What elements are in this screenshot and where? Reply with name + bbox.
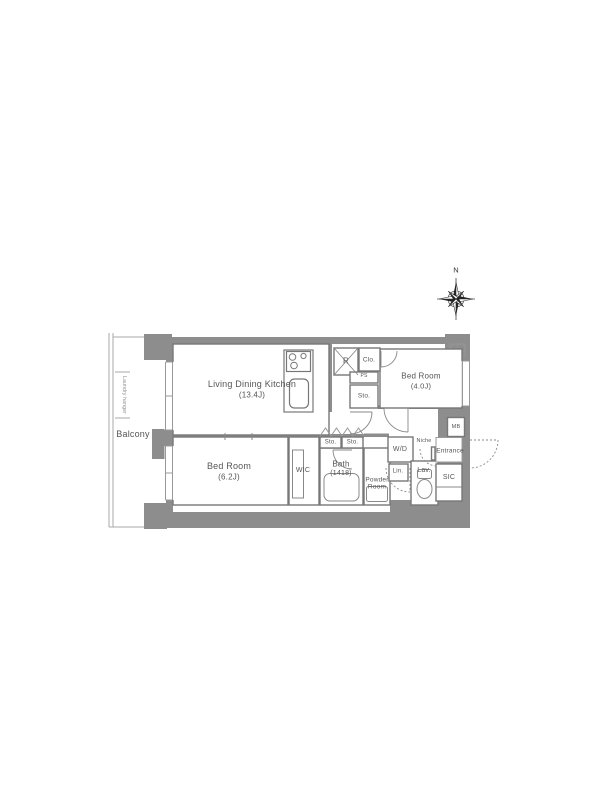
room-label-bedroom-east: Bed Room: [401, 371, 440, 380]
pipe-space-label: PS: [360, 374, 367, 380]
entrance-label: Entrance: [436, 447, 464, 454]
storage-right-label: Sto.: [347, 439, 358, 446]
compass-icon: [437, 278, 475, 320]
floorplan-graphic: [0, 0, 600, 800]
powder-room-label: Powder Room: [360, 477, 394, 492]
bath-label: Bath: [332, 459, 349, 468]
balcony-label: Balcony: [116, 429, 149, 439]
room-label-bedroom-west: Bed Room: [207, 461, 251, 471]
storage-hall-label: Sto.: [358, 392, 370, 399]
floorplan-page: N Living Dining Kitchen (13.4J) Bed Room…: [0, 0, 600, 800]
room-label-ldk: Living Dining Kitchen: [208, 379, 296, 389]
meter-box-label: MB: [452, 424, 461, 430]
room-area-bedroom-west: (6.2J): [218, 472, 240, 481]
compass-north-label: N: [453, 267, 459, 276]
closet-label: Clo.: [363, 356, 375, 363]
storage-left-label: Sto.: [325, 439, 336, 446]
room-area-bedroom-east: (4.0J): [411, 383, 431, 392]
room-area-ldk: (13.4J): [239, 390, 265, 399]
niche-label: Niche: [416, 438, 431, 444]
wic-label: WIC: [296, 467, 310, 475]
linen-label: Lin.: [393, 469, 403, 476]
bath-area: (1418): [330, 470, 351, 478]
refrigerator-label: R: [343, 356, 349, 365]
laundry-hanger-label: Laundry hanger: [120, 376, 126, 414]
sic-label: SIC: [443, 474, 455, 482]
lavatory-label: Lav.: [417, 467, 431, 475]
washer-dryer-label: W/D: [393, 446, 407, 454]
